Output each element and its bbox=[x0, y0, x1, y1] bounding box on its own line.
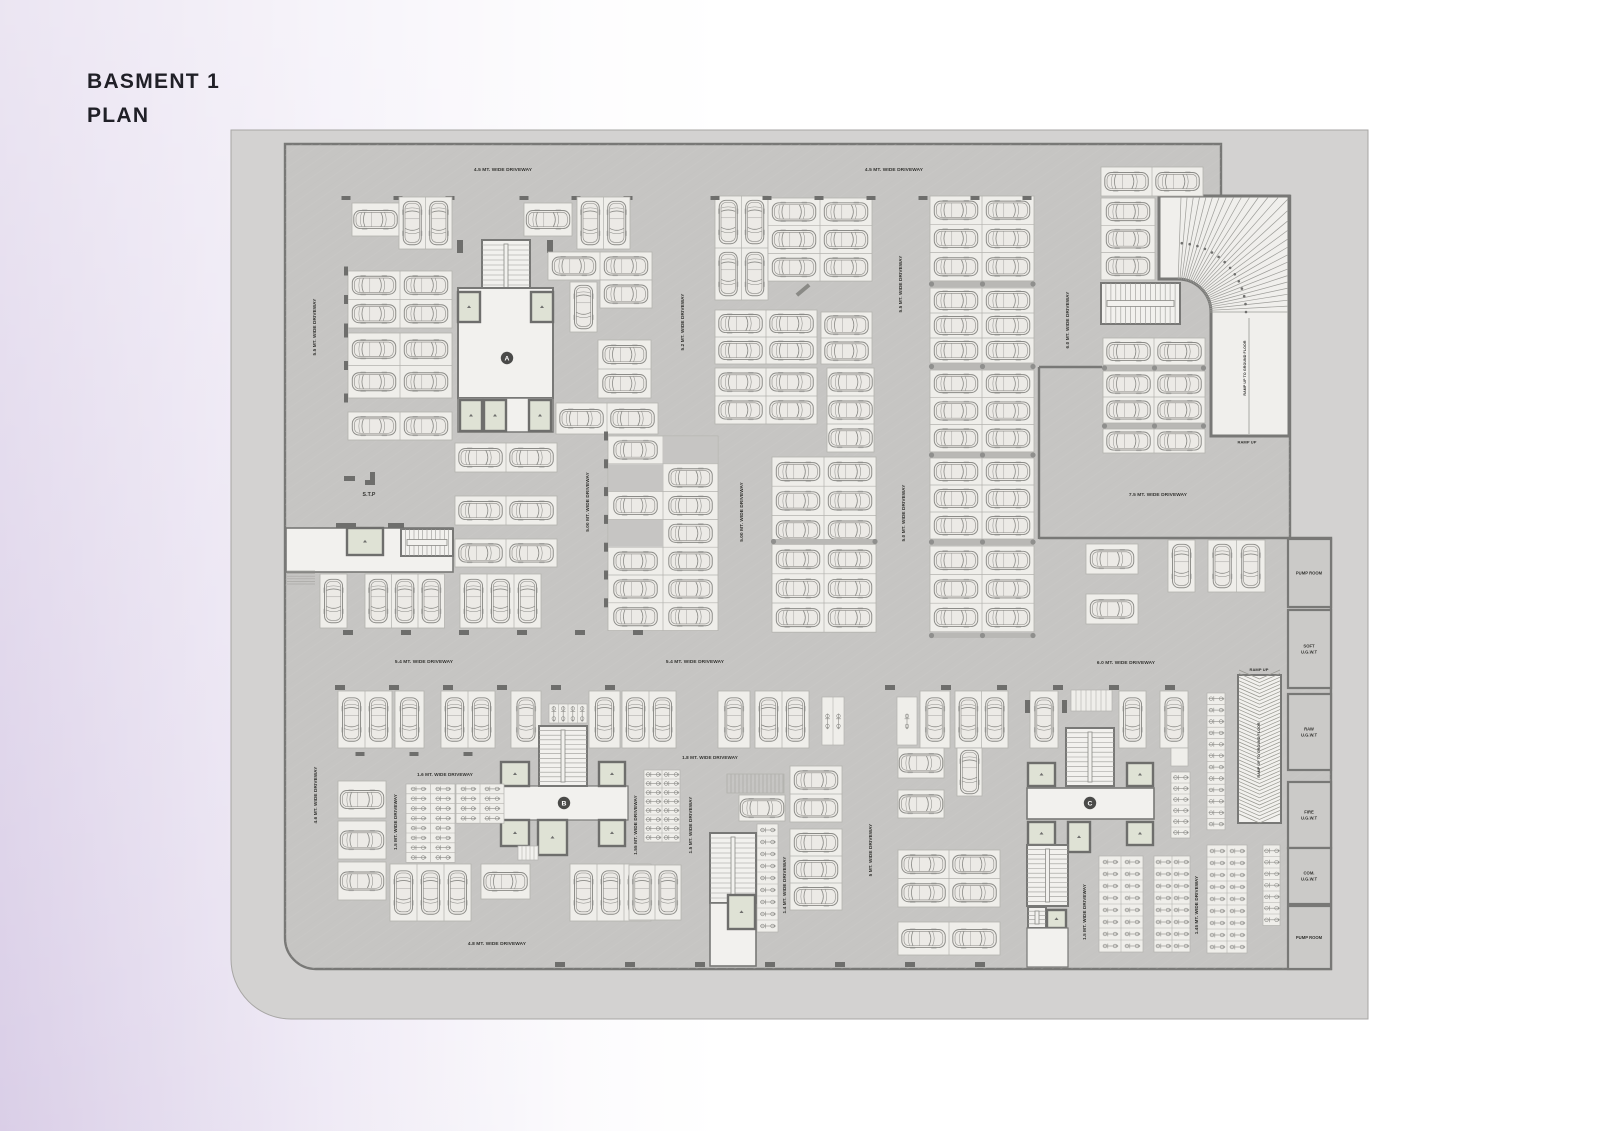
svg-text:4.8 MT. WIDE DRIVEWAY: 4.8 MT. WIDE DRIVEWAY bbox=[468, 941, 527, 947]
svg-text:B: B bbox=[562, 801, 567, 808]
svg-text:PLAN: PLAN bbox=[87, 104, 149, 127]
svg-text:4.5 MT. WIDE DRIVEWAY: 4.5 MT. WIDE DRIVEWAY bbox=[474, 167, 533, 173]
svg-text:1.5 MT. WIDE DRIVEWAY: 1.5 MT. WIDE DRIVEWAY bbox=[393, 794, 398, 850]
svg-text:6.0 MT. WIDE DRIVEWAY: 6.0 MT. WIDE DRIVEWAY bbox=[1065, 291, 1070, 349]
svg-text:PUMP ROOM: PUMP ROOM bbox=[1296, 935, 1323, 940]
svg-text:FIRE: FIRE bbox=[1304, 809, 1314, 814]
svg-text:5.5 MT. WIDE DRIVEWAY: 5.5 MT. WIDE DRIVEWAY bbox=[312, 298, 317, 356]
svg-text:1.5 MT. WIDE DRIVEWAY: 1.5 MT. WIDE DRIVEWAY bbox=[688, 796, 693, 854]
svg-text:U.G.W.T: U.G.W.T bbox=[1301, 877, 1317, 882]
svg-text:4.5 MT. WIDE DRIVEWAY: 4.5 MT. WIDE DRIVEWAY bbox=[865, 167, 924, 173]
svg-text:1.8 MT. WIDE DRIVEWAY: 1.8 MT. WIDE DRIVEWAY bbox=[682, 755, 738, 760]
svg-text:5.00 MT. WIDE DRIVEWAY: 5.00 MT. WIDE DRIVEWAY bbox=[739, 481, 744, 541]
svg-text:7.5 MT. WIDE DRIVEWAY: 7.5 MT. WIDE DRIVEWAY bbox=[1129, 492, 1188, 498]
svg-text:5.00 MT. WIDE DRIVEWAY: 5.00 MT. WIDE DRIVEWAY bbox=[585, 471, 590, 531]
svg-text:1.5 MT. WIDE DRIVEWAY: 1.5 MT. WIDE DRIVEWAY bbox=[1082, 884, 1087, 940]
svg-text:1.4 MT. WIDE DRIVEWAY: 1.4 MT. WIDE DRIVEWAY bbox=[782, 856, 787, 914]
svg-text:5.0 MT. WIDE DRIVEWAY: 5.0 MT. WIDE DRIVEWAY bbox=[901, 484, 906, 542]
svg-text:RAW: RAW bbox=[1304, 726, 1314, 731]
svg-text:6.0 MT. WIDE DRIVEWAY: 6.0 MT. WIDE DRIVEWAY bbox=[1097, 660, 1156, 666]
svg-text:RAMP UP: RAMP UP bbox=[1237, 440, 1256, 445]
svg-text:COM.: COM. bbox=[1304, 870, 1315, 875]
svg-text:4.6 MT. WIDE DRIVEWAY: 4.6 MT. WIDE DRIVEWAY bbox=[313, 766, 318, 824]
svg-text:5.5 MT. WIDE DRIVEWAY: 5.5 MT. WIDE DRIVEWAY bbox=[898, 255, 903, 313]
svg-text:RAMP UP TO GROUND FLOOR: RAMP UP TO GROUND FLOOR bbox=[1257, 722, 1261, 778]
svg-text:A: A bbox=[505, 356, 510, 363]
svg-text:PUMP ROOM: PUMP ROOM bbox=[1296, 571, 1323, 576]
svg-text:5 MT. WIDE DRIVEWAY: 5 MT. WIDE DRIVEWAY bbox=[868, 823, 873, 877]
svg-text:RAMP UP: RAMP UP bbox=[1249, 667, 1268, 672]
svg-text:1.45 MT. WIDE DRIVEWAY: 1.45 MT. WIDE DRIVEWAY bbox=[1194, 876, 1199, 934]
svg-text:1.6 MT. WIDE DRIVEWAY: 1.6 MT. WIDE DRIVEWAY bbox=[417, 772, 473, 777]
svg-text:U.G.W.T: U.G.W.T bbox=[1301, 650, 1317, 655]
svg-text:5.4 MT. WIDE DRIVEWAY: 5.4 MT. WIDE DRIVEWAY bbox=[395, 659, 454, 665]
svg-text:5.4 MT. WIDE DRIVEWAY: 5.4 MT. WIDE DRIVEWAY bbox=[666, 659, 725, 665]
svg-text:SOFT: SOFT bbox=[1303, 643, 1315, 648]
svg-text:BASMENT 1: BASMENT 1 bbox=[87, 70, 220, 93]
svg-text:C: C bbox=[1088, 801, 1093, 808]
svg-text:1.55 MT. WIDE DRIVEWAY: 1.55 MT. WIDE DRIVEWAY bbox=[633, 794, 638, 854]
svg-text:U.G.W.T: U.G.W.T bbox=[1301, 733, 1317, 738]
svg-text:S.T.P: S.T.P bbox=[363, 492, 376, 498]
svg-text:5.2 MT. WIDE DRIVEWAY: 5.2 MT. WIDE DRIVEWAY bbox=[680, 293, 685, 351]
svg-text:U.G.W.T: U.G.W.T bbox=[1301, 816, 1317, 821]
svg-text:RAMP UP TO GROUND FLOOR: RAMP UP TO GROUND FLOOR bbox=[1243, 340, 1247, 396]
